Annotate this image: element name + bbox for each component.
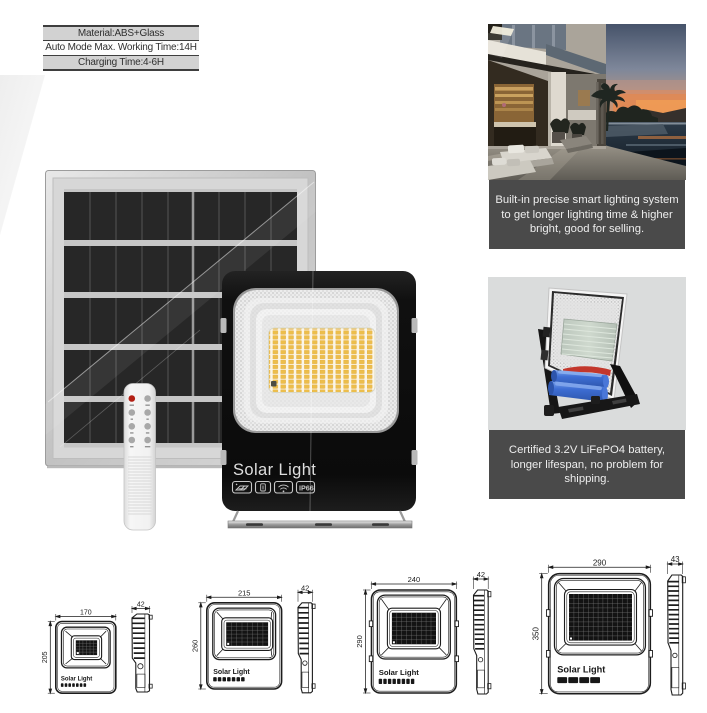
- svg-text:Solar Light: Solar Light: [557, 665, 605, 675]
- svg-text:Solar Light: Solar Light: [213, 669, 250, 676]
- svg-text:IP66: IP66: [299, 484, 314, 493]
- svg-text:42: 42: [301, 584, 309, 593]
- svg-text:350: 350: [531, 626, 540, 640]
- svg-text:43: 43: [671, 555, 680, 564]
- svg-text:215: 215: [238, 589, 251, 598]
- svg-text:42: 42: [137, 602, 145, 609]
- svg-text:Solar Light: Solar Light: [379, 668, 420, 677]
- svg-text:240: 240: [408, 575, 421, 584]
- svg-text:290: 290: [355, 635, 364, 648]
- svg-text:260: 260: [190, 640, 199, 653]
- svg-text:205: 205: [42, 651, 49, 663]
- svg-text:Solar Light: Solar Light: [61, 677, 92, 683]
- svg-text:42: 42: [477, 570, 485, 579]
- svg-text:290: 290: [593, 558, 607, 567]
- svg-text:170: 170: [80, 610, 92, 617]
- svg-text:Solar Light: Solar Light: [233, 461, 316, 479]
